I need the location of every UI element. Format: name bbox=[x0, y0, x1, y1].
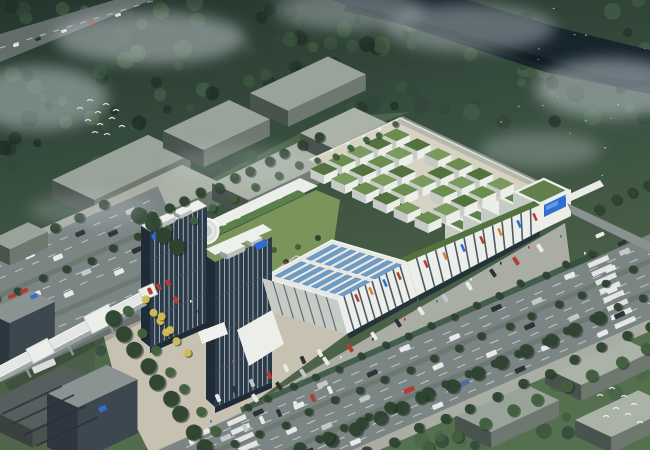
tree bbox=[561, 380, 573, 392]
tree bbox=[195, 187, 205, 197]
tree bbox=[150, 309, 158, 317]
tree bbox=[495, 355, 509, 369]
sparkle bbox=[644, 48, 646, 49]
tree bbox=[427, 322, 434, 329]
pedestrian bbox=[500, 262, 502, 265]
tree bbox=[137, 328, 147, 338]
pedestrian bbox=[470, 278, 472, 281]
forest-blob bbox=[434, 431, 445, 442]
forest-blob bbox=[604, 3, 621, 20]
tree bbox=[531, 394, 543, 406]
mist-patch bbox=[55, 12, 245, 64]
mist-patch bbox=[170, 145, 310, 185]
tree bbox=[586, 369, 598, 381]
tree bbox=[335, 366, 342, 373]
pedestrian bbox=[372, 338, 374, 341]
forest-blob bbox=[562, 413, 571, 422]
forest-blob bbox=[5, 0, 19, 13]
tree bbox=[363, 137, 369, 143]
forest-blob bbox=[463, 104, 480, 121]
pedestrian bbox=[232, 360, 234, 363]
facade-mullion bbox=[531, 209, 532, 236]
tree bbox=[542, 272, 549, 279]
tree bbox=[446, 379, 460, 393]
tree bbox=[183, 349, 191, 357]
tree bbox=[322, 432, 334, 444]
pedestrian bbox=[210, 420, 212, 423]
tree bbox=[165, 203, 175, 213]
forest-blob bbox=[174, 62, 183, 71]
forest-blob bbox=[562, 426, 575, 439]
tree bbox=[594, 204, 604, 214]
tree bbox=[315, 132, 325, 142]
tree bbox=[163, 391, 179, 407]
forest-blob bbox=[369, 94, 382, 107]
tree bbox=[172, 406, 188, 422]
forest-blob bbox=[56, 2, 70, 16]
forest-blob bbox=[517, 78, 526, 87]
tree bbox=[186, 424, 202, 440]
sparkle bbox=[585, 120, 587, 121]
pedestrian bbox=[584, 252, 586, 255]
tree bbox=[208, 204, 216, 212]
aerial-rendering: Aerial bird's-eye rendering of a mixed-u… bbox=[0, 0, 650, 450]
rendering-canvas bbox=[0, 0, 650, 450]
tree bbox=[169, 239, 185, 255]
forest-blob bbox=[255, 12, 267, 24]
forest-blob bbox=[154, 88, 167, 101]
forest-blob bbox=[308, 42, 319, 53]
forest-blob bbox=[398, 55, 412, 69]
forest-blob bbox=[93, 64, 107, 78]
tree bbox=[568, 323, 582, 337]
tree bbox=[507, 404, 519, 416]
tree bbox=[517, 279, 524, 286]
tree bbox=[384, 402, 396, 414]
garden-canopy bbox=[284, 262, 286, 264]
pedestrian bbox=[196, 310, 198, 313]
pedestrian bbox=[190, 300, 192, 303]
forest-blob bbox=[95, 345, 106, 356]
tree bbox=[196, 407, 206, 417]
tree bbox=[471, 366, 485, 380]
tree bbox=[451, 430, 463, 442]
forest-blob bbox=[373, 36, 390, 53]
tree bbox=[611, 195, 621, 205]
forest-blob bbox=[260, 69, 272, 81]
forest-blob bbox=[347, 40, 359, 52]
sparkle bbox=[518, 106, 520, 107]
forest-blob bbox=[439, 103, 450, 114]
forest-blob bbox=[549, 115, 561, 127]
sparkle bbox=[585, 35, 587, 36]
forest-blob bbox=[33, 139, 42, 148]
forest-blob bbox=[9, 132, 22, 145]
tree bbox=[116, 326, 132, 342]
tree bbox=[126, 342, 142, 358]
tree bbox=[415, 392, 427, 404]
sparkle bbox=[538, 48, 540, 49]
tree bbox=[190, 217, 198, 225]
pedestrian bbox=[436, 300, 438, 303]
tree bbox=[519, 344, 533, 358]
tree bbox=[562, 260, 569, 267]
tree bbox=[312, 374, 319, 381]
tree bbox=[264, 395, 271, 402]
tree bbox=[244, 404, 251, 411]
tree bbox=[151, 345, 161, 355]
tree bbox=[357, 352, 364, 359]
pedestrian bbox=[340, 356, 342, 359]
forest-blob bbox=[151, 76, 163, 88]
forest-blob bbox=[132, 115, 147, 130]
tree bbox=[290, 383, 297, 390]
tree bbox=[627, 188, 637, 198]
mist-patch bbox=[30, 194, 150, 226]
pedestrian bbox=[262, 400, 264, 403]
tree bbox=[149, 374, 165, 390]
tree bbox=[210, 426, 220, 436]
tree bbox=[166, 326, 174, 334]
tree bbox=[179, 196, 189, 206]
tree bbox=[105, 310, 121, 326]
tree bbox=[356, 417, 368, 429]
tree bbox=[155, 227, 171, 243]
sparkle bbox=[574, 34, 576, 35]
tree bbox=[374, 411, 388, 425]
tree bbox=[297, 140, 307, 150]
tree bbox=[588, 250, 595, 257]
tree bbox=[142, 295, 150, 303]
pedestrian bbox=[528, 246, 530, 249]
tree bbox=[382, 341, 389, 348]
forest-blob bbox=[406, 82, 420, 96]
garden-tree bbox=[315, 235, 321, 241]
tree bbox=[145, 215, 161, 231]
mist-patch bbox=[480, 132, 600, 168]
sparkle bbox=[538, 59, 540, 60]
mist-patch bbox=[385, 4, 555, 52]
tree bbox=[392, 121, 398, 127]
forest-blob bbox=[186, 103, 194, 111]
forest-blob bbox=[324, 37, 337, 50]
pedestrian bbox=[404, 318, 406, 321]
tree bbox=[495, 292, 502, 299]
forest-blob bbox=[623, 28, 632, 37]
tree bbox=[451, 313, 458, 320]
pedestrian bbox=[560, 235, 562, 238]
pedestrian bbox=[250, 408, 252, 411]
forest-blob bbox=[101, 120, 110, 129]
forest-blob bbox=[243, 75, 255, 87]
tree bbox=[123, 306, 133, 316]
tree bbox=[165, 367, 175, 377]
forest-blob bbox=[390, 101, 399, 110]
tree bbox=[173, 337, 181, 345]
tree bbox=[479, 418, 491, 430]
forest-blob bbox=[7, 161, 18, 172]
tree bbox=[473, 302, 480, 309]
tree bbox=[332, 153, 338, 159]
forest-blob bbox=[264, 3, 276, 15]
sparkle bbox=[611, 118, 613, 119]
forest-blob bbox=[205, 86, 219, 100]
forest-blob bbox=[228, 66, 238, 76]
forest-blob bbox=[359, 36, 375, 52]
forest-blob bbox=[497, 115, 511, 129]
tree bbox=[158, 312, 166, 320]
tree bbox=[545, 334, 559, 348]
garden-tree bbox=[295, 244, 301, 250]
tree bbox=[347, 145, 353, 151]
tree bbox=[405, 332, 412, 339]
tree bbox=[141, 358, 157, 374]
tree bbox=[230, 195, 238, 203]
tree bbox=[616, 356, 628, 368]
tree bbox=[592, 311, 606, 325]
tree bbox=[376, 132, 382, 138]
pedestrian bbox=[300, 380, 302, 383]
forest-blob bbox=[413, 97, 430, 114]
forest-blob bbox=[283, 32, 298, 47]
tree bbox=[179, 384, 189, 394]
forest-blob bbox=[163, 105, 172, 114]
tree bbox=[314, 157, 320, 163]
sparkle bbox=[542, 105, 544, 106]
